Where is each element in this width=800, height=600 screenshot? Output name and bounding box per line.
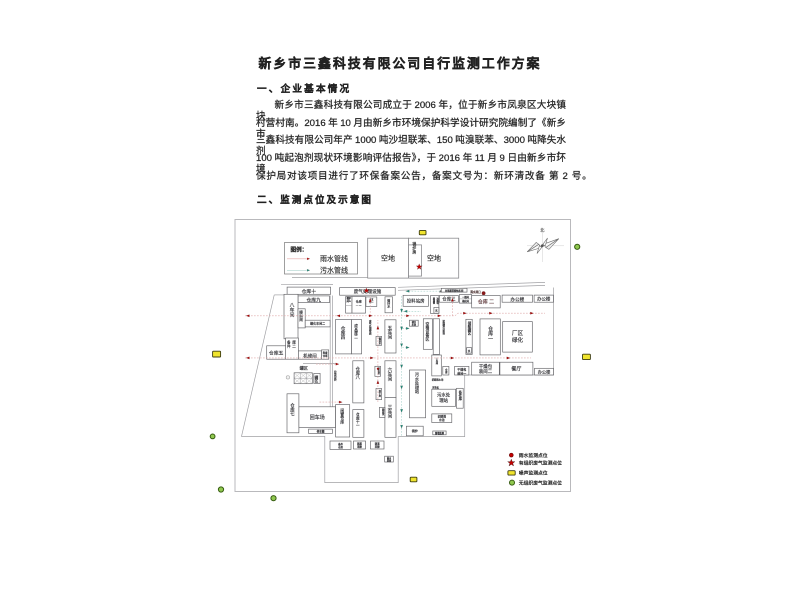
svg-text:回车场: 回车场 bbox=[310, 414, 325, 421]
svg-text:循环水: 循环水 bbox=[387, 297, 391, 308]
svg-text:噪声监测点位: 噪声监测点位 bbox=[519, 470, 548, 477]
svg-text:罐区: 罐区 bbox=[314, 374, 319, 382]
svg-text:初期雨水池: 初期雨水池 bbox=[432, 378, 444, 382]
svg-text:停车棚: 停车棚 bbox=[317, 429, 325, 433]
svg-text:仓库七: 仓库七 bbox=[290, 402, 296, 417]
svg-text:有组织废气监测点位: 有组织废气监测点位 bbox=[519, 460, 562, 467]
svg-text:水池: 水池 bbox=[439, 418, 445, 422]
svg-text:仓库 二: 仓库 二 bbox=[478, 299, 494, 306]
svg-text:仓库一: 仓库一 bbox=[487, 325, 493, 341]
svg-text:六车间: 六车间 bbox=[387, 367, 393, 383]
svg-text:仓库: 仓库 bbox=[356, 298, 362, 303]
svg-text:办公楼: 办公楼 bbox=[538, 369, 551, 376]
svg-text:水: 水 bbox=[435, 309, 438, 313]
svg-text:仓库十: 仓库十 bbox=[302, 288, 317, 295]
svg-text:仓库八: 仓库八 bbox=[355, 365, 361, 380]
svg-text:装间一: 装间一 bbox=[457, 370, 466, 375]
svg-text:仓库: 仓库 bbox=[444, 367, 447, 373]
svg-text:苯酚: 苯酚 bbox=[375, 445, 380, 449]
svg-text:理站: 理站 bbox=[439, 397, 448, 404]
svg-text:水: 水 bbox=[468, 349, 471, 353]
svg-text:办公楼: 办公楼 bbox=[510, 296, 524, 303]
svg-text:污水处理站: 污水处理站 bbox=[414, 371, 420, 395]
svg-text:闲置仓库: 闲置仓库 bbox=[340, 408, 345, 425]
svg-text:图例：: 图例： bbox=[291, 245, 308, 253]
svg-text:垃圾中转: 垃圾中转 bbox=[333, 370, 336, 382]
svg-text:仓库: 仓库 bbox=[338, 445, 343, 449]
svg-text:投料站房: 投料站房 bbox=[407, 297, 425, 304]
svg-text:雨水监测点位: 雨水监测点位 bbox=[519, 452, 548, 459]
svg-text:办公楼: 办公楼 bbox=[537, 296, 551, 303]
svg-text:雨水管线: 雨水管线 bbox=[320, 254, 348, 263]
svg-text:厂区: 厂区 bbox=[512, 330, 524, 337]
svg-text:绿化: 绿化 bbox=[512, 336, 524, 344]
svg-text:无组织废气监测点位: 无组织废气监测点位 bbox=[519, 480, 562, 487]
svg-text:成品库二: 成品库二 bbox=[353, 323, 358, 338]
svg-text:五车间: 五车间 bbox=[387, 326, 393, 341]
svg-text:仓库十一: 仓库十一 bbox=[355, 412, 360, 427]
svg-text:储酸罐区: 储酸罐区 bbox=[467, 320, 471, 335]
svg-text:仓库四: 仓库四 bbox=[340, 325, 346, 340]
svg-text:库二: 库二 bbox=[291, 340, 296, 348]
svg-text:仓库五: 仓库五 bbox=[269, 349, 284, 356]
svg-text:仓库: 仓库 bbox=[323, 354, 328, 358]
svg-text:三车间: 三车间 bbox=[387, 405, 393, 420]
svg-text:装间二: 装间二 bbox=[479, 368, 493, 375]
svg-text:玻璃钢冷却塔: 玻璃钢冷却塔 bbox=[442, 319, 445, 335]
svg-text:空桶设备区: 空桶设备区 bbox=[425, 321, 430, 341]
svg-text:空地: 空地 bbox=[427, 253, 441, 262]
svg-text:磺化车间二: 磺化车间二 bbox=[310, 321, 325, 326]
svg-text:北: 北 bbox=[540, 227, 545, 234]
svg-text:机修间: 机修间 bbox=[303, 352, 317, 359]
svg-text:废气处理管线: 废气处理管线 bbox=[368, 319, 371, 336]
svg-text:备件库: 备件库 bbox=[458, 389, 462, 401]
svg-text:空地: 空地 bbox=[381, 253, 395, 262]
svg-text:雨水排口: 雨水排口 bbox=[470, 290, 481, 294]
svg-text:仓库九: 仓库九 bbox=[306, 296, 321, 303]
svg-text:罐区: 罐区 bbox=[300, 365, 308, 372]
svg-text:— 一: — 一 bbox=[356, 304, 362, 307]
svg-text:餐厅: 餐厅 bbox=[511, 366, 521, 373]
svg-text:罗茨机: 罗茨机 bbox=[432, 385, 439, 389]
svg-text:苯酚: 苯酚 bbox=[357, 445, 362, 449]
svg-text:污水管线: 污水管线 bbox=[320, 266, 348, 275]
svg-text:备件: 备件 bbox=[286, 340, 291, 349]
svg-text:锅炉: 锅炉 bbox=[412, 428, 418, 433]
svg-text:仓库三: 仓库三 bbox=[442, 296, 456, 303]
svg-text:锅炉房: 锅炉房 bbox=[412, 242, 417, 255]
